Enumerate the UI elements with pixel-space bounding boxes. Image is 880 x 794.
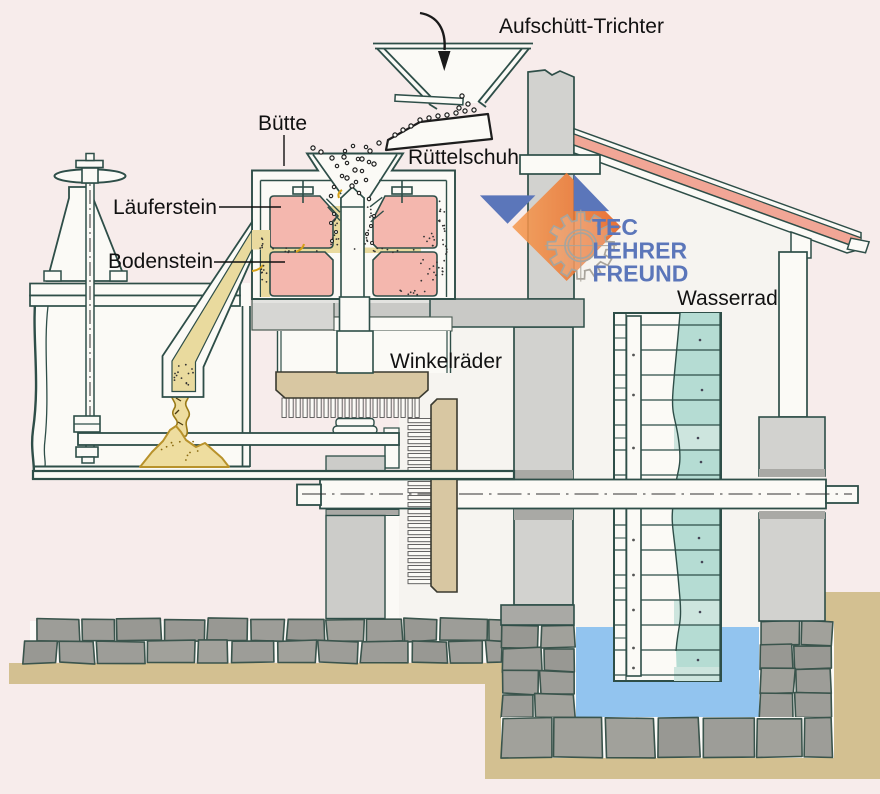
svg-text:Bütte: Bütte (258, 112, 307, 135)
svg-text:Rüttelschuh: Rüttelschuh (408, 146, 519, 169)
svg-text:Winkelräder: Winkelräder (390, 350, 502, 373)
svg-text:FREUND: FREUND (593, 261, 689, 287)
svg-text:Läuferstein: Läuferstein (113, 196, 217, 219)
svg-text:Aufschütt-Trichter: Aufschütt-Trichter (499, 15, 664, 38)
svg-text:Wasserrad: Wasserrad (677, 287, 778, 310)
svg-text:TEC: TEC (592, 214, 638, 240)
svg-text:Bodenstein: Bodenstein (108, 250, 213, 273)
